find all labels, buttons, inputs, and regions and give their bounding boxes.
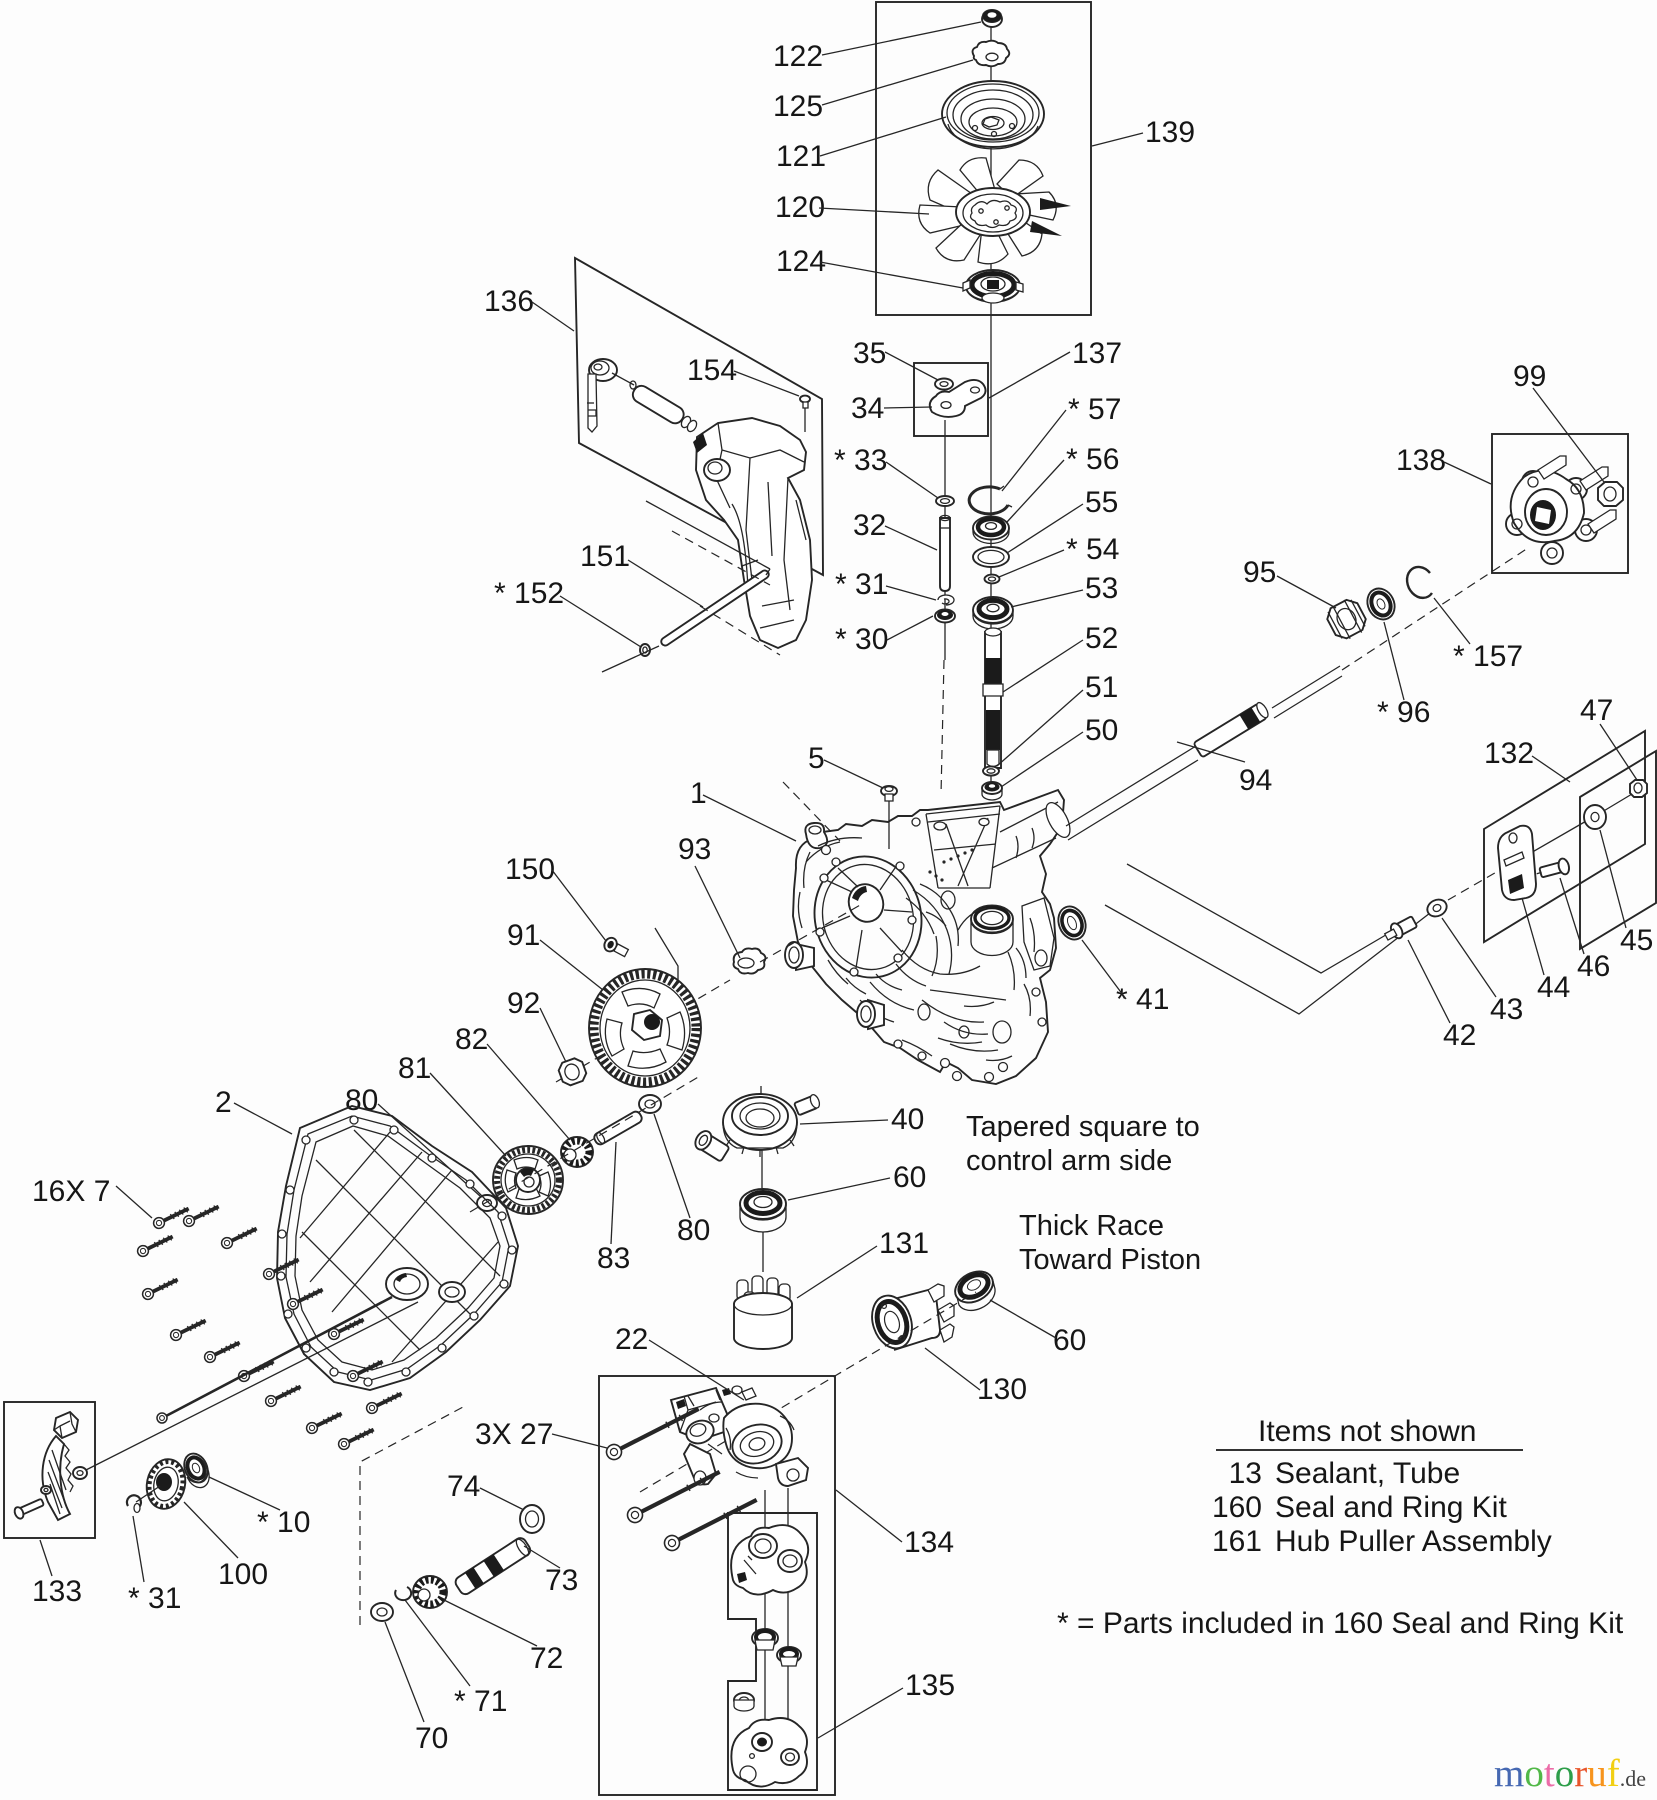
svg-text:* 157: * 157 (1453, 640, 1523, 673)
svg-text:120: 120 (775, 191, 825, 224)
svg-text:50: 50 (1085, 714, 1118, 747)
svg-text:* 33: * 33 (834, 444, 887, 477)
svg-text:131: 131 (879, 1227, 929, 1260)
svg-text:* 31: * 31 (128, 1582, 181, 1615)
svg-text:134: 134 (904, 1526, 954, 1559)
svg-text:138: 138 (1396, 444, 1446, 477)
svg-text:* 57: * 57 (1068, 393, 1121, 426)
svg-text:* = Parts included in 160 Seal: * = Parts included in 160 Seal and Ring … (1057, 1607, 1624, 1640)
svg-text:43: 43 (1490, 993, 1523, 1026)
svg-text:73: 73 (545, 1564, 578, 1597)
svg-text:40: 40 (891, 1103, 924, 1136)
svg-text:35: 35 (853, 337, 886, 370)
svg-text:124: 124 (776, 245, 826, 278)
svg-text:32: 32 (853, 509, 886, 542)
svg-text:47: 47 (1580, 694, 1613, 727)
svg-text:2: 2 (215, 1086, 232, 1119)
svg-text:Seal and Ring Kit: Seal and Ring Kit (1275, 1491, 1507, 1524)
svg-text:* 31: * 31 (835, 568, 888, 601)
svg-text:42: 42 (1443, 1019, 1476, 1052)
svg-text:13: 13 (1229, 1457, 1262, 1490)
svg-text:1: 1 (690, 777, 707, 810)
svg-text:45: 45 (1620, 924, 1653, 957)
svg-text:* 56: * 56 (1066, 443, 1119, 476)
svg-text:92: 92 (507, 987, 540, 1020)
svg-text:72: 72 (530, 1642, 563, 1675)
svg-text:* 152: * 152 (494, 577, 564, 610)
svg-text:137: 137 (1072, 337, 1122, 370)
svg-text:99: 99 (1513, 360, 1546, 393)
svg-text:60: 60 (1053, 1324, 1086, 1357)
svg-text:44: 44 (1537, 971, 1570, 1004)
svg-text:94: 94 (1239, 764, 1272, 797)
svg-text:51: 51 (1085, 671, 1118, 704)
svg-text:132: 132 (1484, 737, 1534, 770)
svg-text:52: 52 (1085, 622, 1118, 655)
svg-text:121: 121 (776, 140, 826, 173)
svg-text:95: 95 (1243, 556, 1276, 589)
svg-text:Hub Puller Assembly: Hub Puller Assembly (1275, 1525, 1552, 1558)
svg-text:* 71: * 71 (454, 1685, 507, 1718)
svg-text:* 41: * 41 (1116, 983, 1169, 1016)
svg-text:130: 130 (977, 1373, 1027, 1406)
svg-text:154: 154 (687, 354, 737, 387)
svg-text:91: 91 (507, 919, 540, 952)
svg-text:161: 161 (1212, 1525, 1262, 1558)
svg-text:* 54: * 54 (1066, 533, 1119, 566)
svg-text:* 10: * 10 (257, 1506, 310, 1539)
svg-text:Sealant, Tube: Sealant, Tube (1275, 1457, 1460, 1490)
svg-text:70: 70 (415, 1722, 448, 1755)
svg-text:122: 122 (773, 40, 823, 73)
svg-text:82: 82 (455, 1023, 488, 1056)
svg-text:125: 125 (773, 90, 823, 123)
svg-text:81: 81 (398, 1052, 431, 1085)
svg-text:3X 27: 3X 27 (475, 1418, 553, 1451)
svg-text:53: 53 (1085, 572, 1118, 605)
svg-text:22: 22 (615, 1323, 648, 1356)
svg-text:160: 160 (1212, 1491, 1262, 1524)
svg-text:Tapered square to: Tapered square to (966, 1111, 1200, 1143)
svg-text:133: 133 (32, 1575, 82, 1608)
svg-text:136: 136 (484, 285, 534, 318)
svg-text:74: 74 (447, 1470, 480, 1503)
svg-text:control arm side: control arm side (966, 1145, 1172, 1177)
svg-text:139: 139 (1145, 116, 1195, 149)
svg-text:83: 83 (597, 1242, 630, 1275)
svg-text:Toward Piston: Toward Piston (1019, 1244, 1201, 1276)
svg-text:34: 34 (851, 392, 884, 425)
svg-text:* 30: * 30 (835, 623, 888, 656)
svg-text:5: 5 (808, 742, 825, 775)
svg-text:135: 135 (905, 1669, 955, 1702)
svg-text:Items not shown: Items not shown (1258, 1415, 1476, 1448)
svg-text:46: 46 (1577, 950, 1610, 983)
svg-text:150: 150 (505, 853, 555, 886)
svg-text:151: 151 (580, 540, 630, 573)
svg-text:93: 93 (678, 833, 711, 866)
svg-text:55: 55 (1085, 486, 1118, 519)
svg-text:100: 100 (218, 1558, 268, 1591)
svg-text:Thick Race: Thick Race (1019, 1210, 1164, 1242)
svg-text:16X 7: 16X 7 (32, 1175, 110, 1208)
svg-text:80: 80 (677, 1214, 710, 1247)
svg-text:* 96: * 96 (1377, 696, 1430, 729)
svg-text:60: 60 (893, 1161, 926, 1194)
